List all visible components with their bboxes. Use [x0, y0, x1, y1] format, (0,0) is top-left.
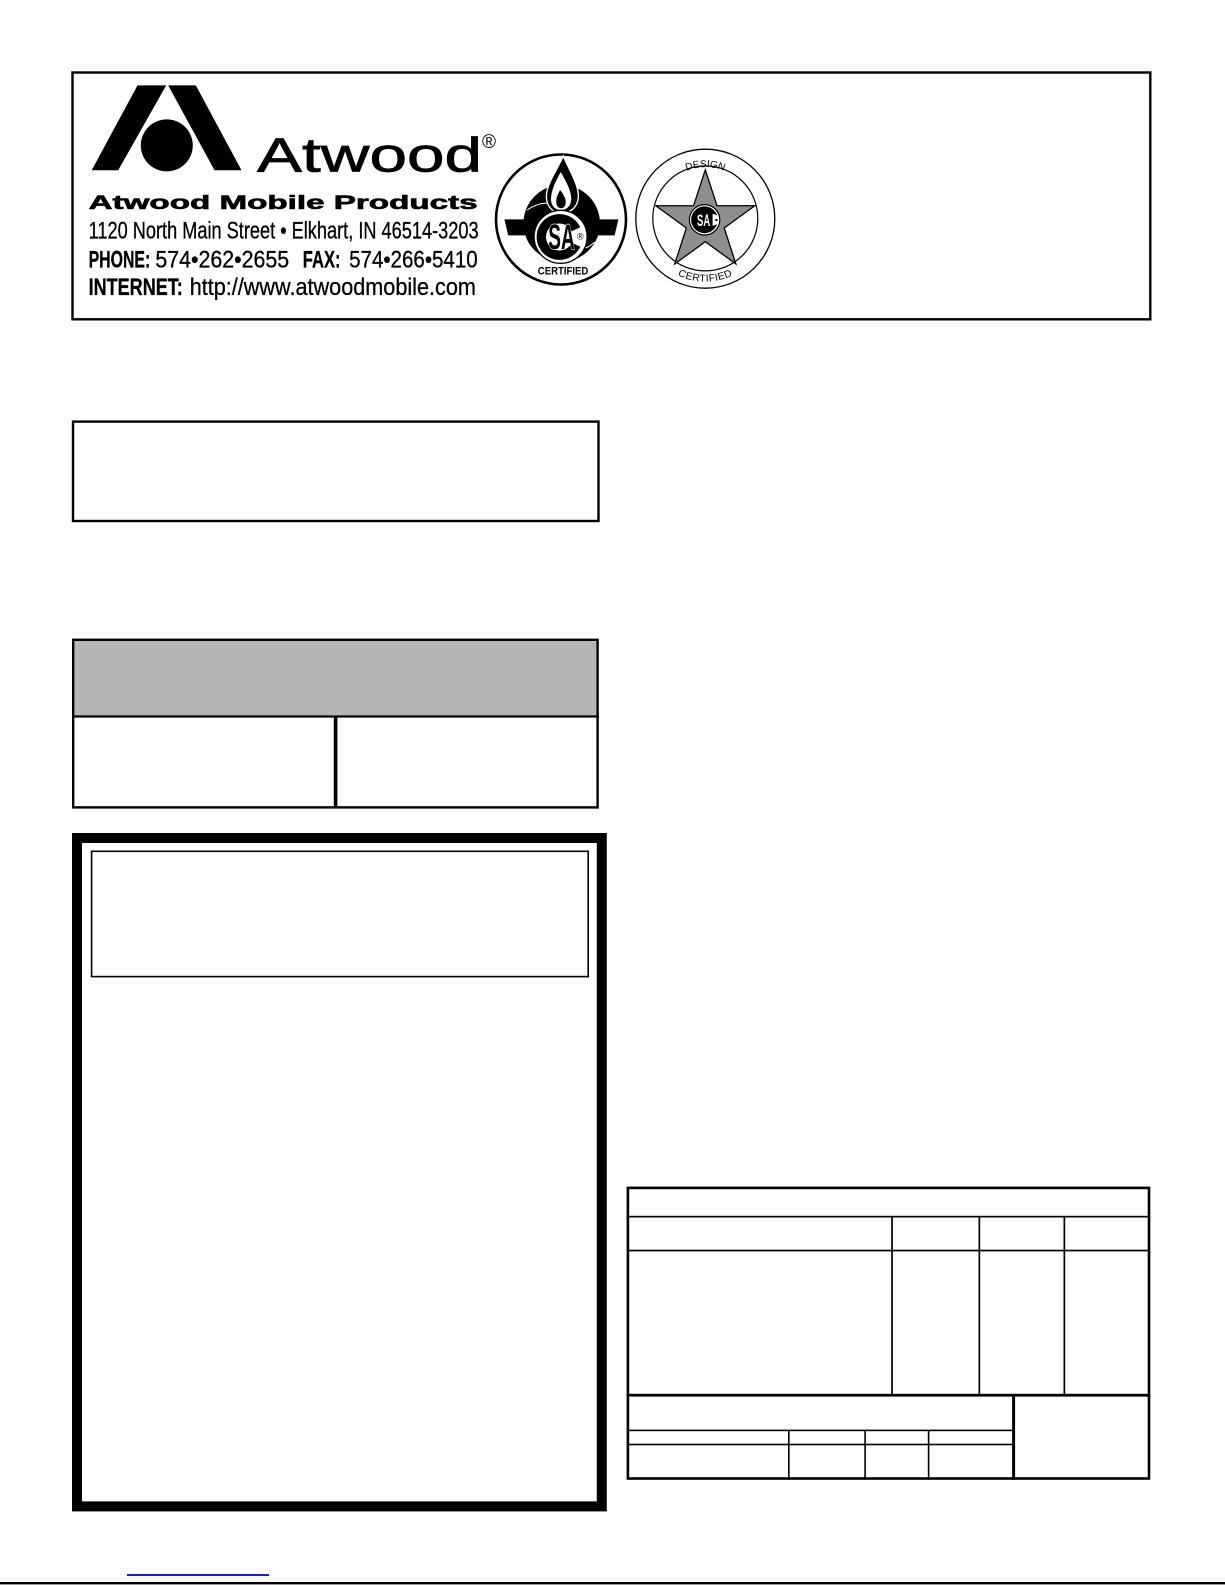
- svg-text:Atwood Mobile Products: Atwood Mobile Products: [89, 193, 478, 214]
- svg-text:Atwood: Atwood: [257, 130, 482, 183]
- svg-text:574•262•2655: 574•262•2655: [155, 246, 289, 273]
- svg-text:CERTIFIED: CERTIFIED: [538, 266, 589, 278]
- svg-text:FAX:: FAX:: [303, 246, 341, 273]
- svg-text:574•266•5410: 574•266•5410: [349, 246, 478, 273]
- svg-text:SA: SA: [697, 212, 710, 231]
- svg-text:1120 North Main Street • Elkha: 1120 North Main Street • Elkhart, IN 465…: [89, 217, 479, 244]
- svg-text:http://www.atwoodmobile.com: http://www.atwoodmobile.com: [190, 274, 476, 301]
- svg-text:INTERNET:: INTERNET:: [89, 274, 183, 301]
- svg-text:®: ®: [577, 232, 584, 242]
- svg-text:SA: SA: [548, 216, 575, 256]
- svg-text:®: ®: [482, 132, 496, 153]
- svg-text:PHONE:: PHONE:: [89, 246, 151, 273]
